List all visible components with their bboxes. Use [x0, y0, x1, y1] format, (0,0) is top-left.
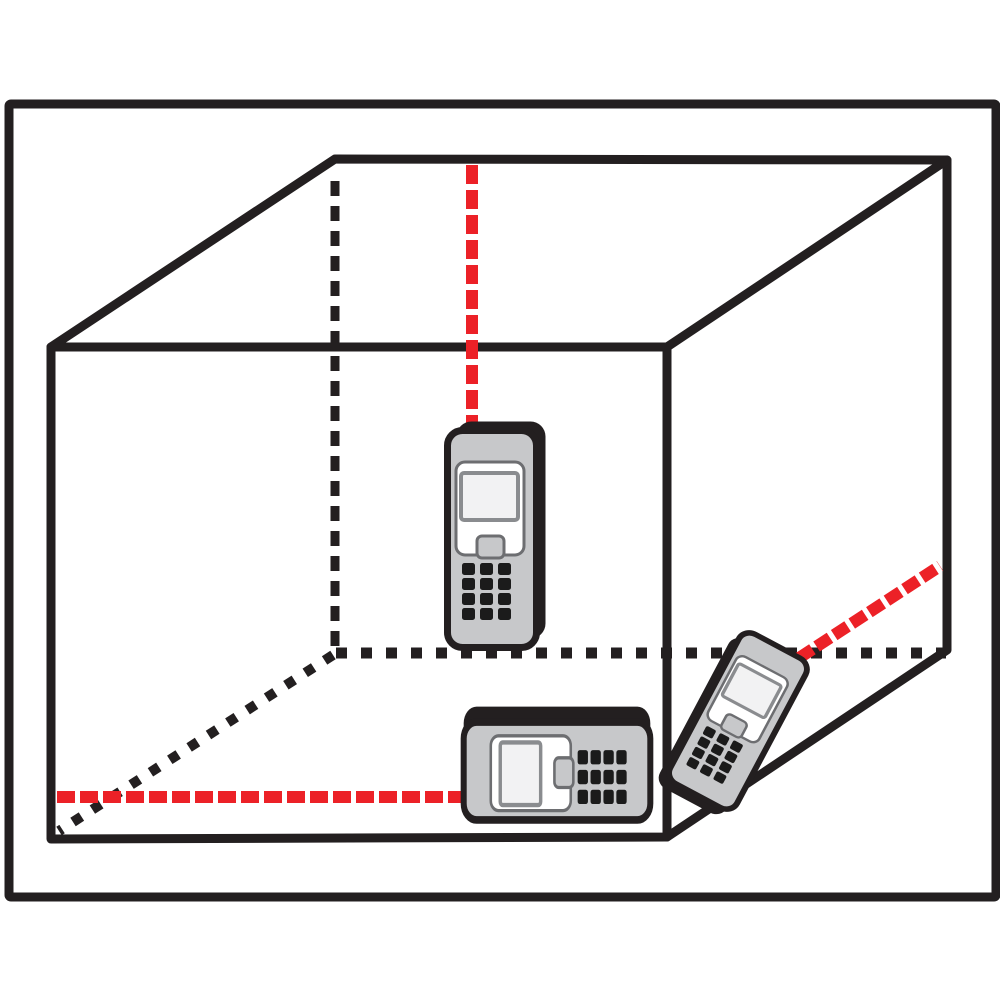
device-key: [480, 563, 493, 575]
device-key: [591, 770, 601, 784]
device-key: [616, 790, 626, 804]
device-key: [480, 608, 493, 620]
device-key: [616, 770, 626, 784]
device-key: [462, 563, 475, 575]
device-key: [591, 750, 601, 764]
device-screen: [500, 742, 540, 805]
device-key: [498, 578, 511, 590]
device-key: [462, 608, 475, 620]
room-measurement-illustration: [0, 0, 1000, 1000]
device-key: [480, 578, 493, 590]
laser-meter-horizontal: [464, 707, 651, 820]
laser-meter-vertical: [448, 422, 546, 648]
device-panel-notch: [477, 536, 504, 558]
device-key: [603, 770, 613, 784]
device-key: [616, 750, 626, 764]
device-key: [578, 770, 588, 784]
device-key: [578, 750, 588, 764]
device-key: [480, 593, 493, 605]
device-key: [462, 593, 475, 605]
device-key: [462, 578, 475, 590]
device-key: [498, 563, 511, 575]
device-key: [498, 608, 511, 620]
device-key: [591, 790, 601, 804]
device-key: [498, 593, 511, 605]
device-key: [603, 790, 613, 804]
device-key: [603, 750, 613, 764]
measurement-diagram: [0, 0, 1000, 1000]
device-panel-notch: [554, 758, 573, 788]
device-screen: [461, 473, 518, 520]
device-key: [578, 790, 588, 804]
